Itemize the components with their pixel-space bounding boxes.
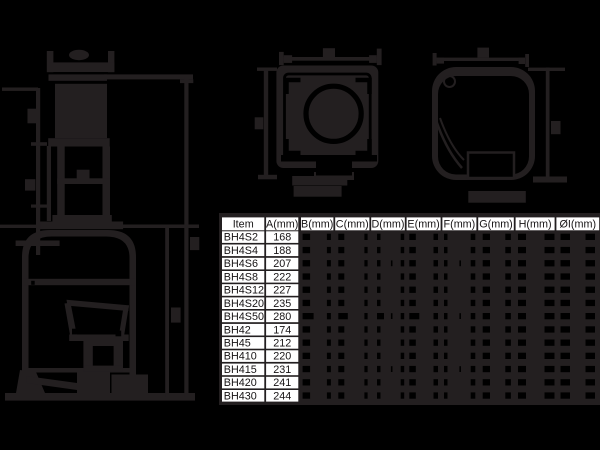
svg-text:D(mm): D(mm) [372, 219, 405, 231]
svg-text:BH4S2: BH4S2 [224, 232, 258, 244]
svg-text:168: 168 [273, 232, 291, 244]
svg-text:BH4S8: BH4S8 [224, 271, 258, 283]
svg-text:ØI(mm): ØI(mm) [560, 219, 597, 231]
svg-text:BH4S4: BH4S4 [224, 245, 258, 257]
svg-text:BH430: BH430 [224, 390, 257, 402]
svg-text:C(mm): C(mm) [336, 219, 369, 231]
svg-text:222: 222 [273, 271, 291, 283]
svg-text:BH420: BH420 [224, 377, 257, 389]
svg-text:BH45: BH45 [224, 338, 251, 350]
svg-text:BH4S20: BH4S20 [224, 298, 264, 310]
svg-text:212: 212 [273, 338, 291, 350]
svg-text:G(mm): G(mm) [479, 219, 513, 231]
svg-text:BH4S50: BH4S50 [224, 311, 264, 323]
svg-text:F(mm): F(mm) [444, 219, 476, 231]
svg-text:BH410: BH410 [224, 351, 257, 363]
svg-text:A(mm): A(mm) [266, 219, 298, 231]
svg-text:235: 235 [273, 298, 291, 310]
svg-text:207: 207 [273, 258, 291, 270]
svg-text:231: 231 [273, 364, 291, 376]
svg-text:H(mm): H(mm) [519, 219, 552, 231]
svg-text:BH42: BH42 [224, 324, 251, 336]
svg-text:BH415: BH415 [224, 364, 257, 376]
svg-text:280: 280 [273, 311, 291, 323]
svg-text:227: 227 [273, 285, 291, 297]
svg-text:BH4S12: BH4S12 [224, 285, 264, 297]
svg-text:B(mm): B(mm) [301, 219, 333, 231]
svg-text:244: 244 [273, 390, 291, 402]
svg-text:BH4S6: BH4S6 [224, 258, 258, 270]
svg-text:188: 188 [273, 245, 291, 257]
svg-text:220: 220 [273, 351, 291, 363]
svg-text:241: 241 [273, 377, 291, 389]
svg-text:Item: Item [233, 219, 254, 231]
svg-text:174: 174 [273, 324, 291, 336]
svg-text:E(mm): E(mm) [407, 219, 439, 231]
